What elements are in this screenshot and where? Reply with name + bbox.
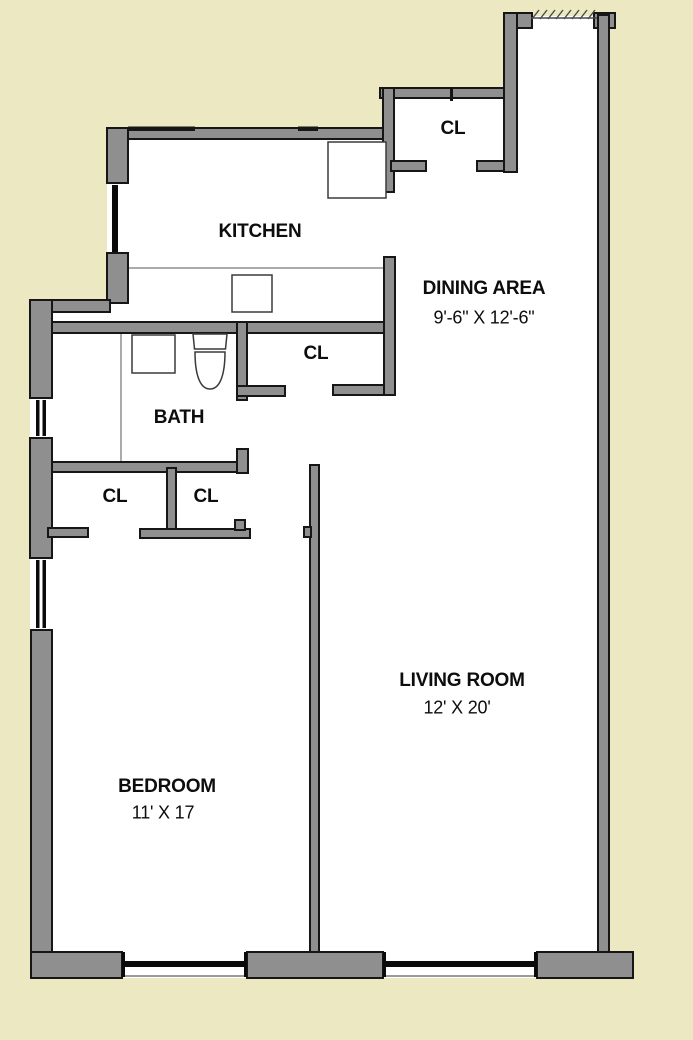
- sink-icon: [132, 335, 175, 373]
- kitchen-bottom-wall: [52, 322, 394, 333]
- room-label-bath: BATH: [154, 407, 205, 429]
- living-room-window: [383, 952, 537, 977]
- entry-closet-stub-left: [391, 161, 426, 171]
- stove-icon: [232, 275, 272, 312]
- room-label-kitchen: KITCHEN: [218, 221, 301, 243]
- entry-closet-top-wall: [380, 88, 507, 98]
- entry-corridor-wall: [504, 13, 517, 172]
- bottom-wall-middle: [247, 952, 383, 978]
- hall-closet-stub-left: [237, 386, 285, 396]
- refrigerator-icon: [328, 142, 386, 198]
- closet-divider-wall: [167, 468, 176, 530]
- room-dims-dining: 9'-6" X 12'-6": [434, 308, 535, 329]
- closet-label-bedroom-right: CL: [194, 486, 219, 508]
- bedroom-side-window: [30, 559, 52, 629]
- floor-plan-drawing: [0, 0, 693, 1040]
- room-label-bedroom: BEDROOM: [118, 776, 216, 798]
- left-exterior-wall-c: [31, 630, 52, 978]
- kitchen-left-wall-lower: [107, 253, 128, 303]
- partition-notch: [304, 527, 311, 537]
- closet-bottom-notch: [235, 520, 245, 530]
- bottom-wall-left: [31, 952, 122, 978]
- left-exterior-wall-a: [30, 300, 52, 398]
- bath-bottom-wall: [52, 462, 248, 472]
- left-exterior-wall-b: [30, 438, 52, 558]
- closet-label-bedroom-left: CL: [103, 486, 128, 508]
- kitchen-window: [107, 184, 128, 252]
- bottom-wall-right: [537, 952, 633, 978]
- room-label-dining: DINING AREA: [423, 278, 546, 300]
- bedroom-window: [122, 952, 247, 977]
- partition-wall: [310, 465, 319, 952]
- room-dims-bedroom: 11' X 17: [132, 803, 195, 824]
- right-exterior-wall: [598, 15, 609, 955]
- closet-label-hall: CL: [304, 343, 329, 365]
- entry-hatch-icon: [531, 10, 597, 19]
- closet-bottom-wall: [140, 529, 250, 538]
- hall-closet-right-wall: [384, 257, 395, 395]
- closet-stub-left: [48, 528, 88, 537]
- bath-window: [30, 399, 52, 437]
- kitchen-left-wall-upper: [107, 128, 128, 183]
- room-dims-living: 12' X 20': [423, 698, 490, 719]
- floor-plan: KITCHEN DINING AREA 9'-6" X 12'-6" BATH …: [0, 0, 693, 1040]
- closet-label-entry: CL: [441, 118, 466, 140]
- room-label-living: LIVING ROOM: [399, 670, 525, 692]
- bath-bottom-wall-cap: [237, 449, 248, 473]
